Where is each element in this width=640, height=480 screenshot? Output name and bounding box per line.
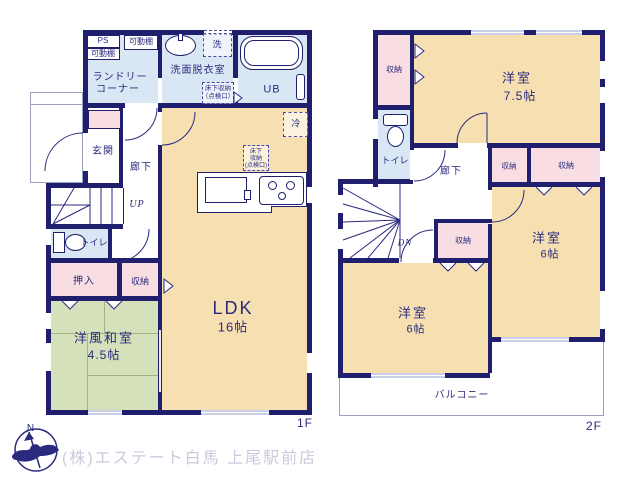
- label-underfloor-wash-1: 床下収納: [205, 86, 231, 93]
- label-hall-1f: 廊下: [130, 163, 152, 173]
- label-storage-2f-a: 収納: [502, 162, 517, 170]
- company-name: (株)エステート白馬 上尾駅前店: [62, 444, 317, 468]
- label-toilet-2f: トイレ: [381, 157, 408, 166]
- label-ps: PS: [98, 37, 109, 45]
- door-arc-laundry: [125, 108, 157, 140]
- label-shelf-b: 可動棚: [129, 38, 153, 46]
- door-arc-toilet-hall-1f: [116, 229, 149, 262]
- label-bed75-name: 洋室: [502, 72, 532, 85]
- compass-north-label: N: [27, 424, 35, 434]
- label-underfloor-wash-2: （点検口）: [202, 94, 235, 101]
- label-underfloor-ldk-1: 床下: [250, 149, 262, 155]
- label-fridge: 冷: [291, 120, 300, 129]
- label-bed6e-size: 6帖: [540, 250, 559, 261]
- label-floor-2f: 2F: [586, 420, 602, 432]
- label-storage-2f-b: 収納: [558, 162, 574, 170]
- label-storage-2f-nw: 収納: [386, 66, 402, 74]
- label-bed75-size: 7.5帖: [504, 90, 537, 102]
- label-closet: 押入: [73, 277, 95, 287]
- label-bed6s-name: 洋室: [398, 307, 428, 320]
- label-balcony: バルコニー: [435, 391, 490, 401]
- label-floor-1f: 1F: [297, 417, 313, 429]
- door-arc-bed75: [457, 113, 487, 143]
- label-storage-2f-c: 収納: [455, 237, 471, 245]
- door-arc-entrance: [45, 133, 83, 171]
- label-tatami-size: 4.5帖: [88, 349, 121, 361]
- label-washer: 洗: [212, 41, 221, 50]
- label-toilet-1f: トイレ: [80, 239, 107, 248]
- label-underfloor-ldk-2: 収納: [250, 156, 262, 162]
- label-tatami-name: 洋風和室: [74, 332, 134, 345]
- door-arc-bed6-east: [492, 190, 524, 222]
- label-laundry-1: ランドリー: [93, 73, 148, 83]
- label-stairs-up: UP: [129, 200, 144, 210]
- label-bed6e-name: 洋室: [532, 232, 562, 245]
- label-bed6s-size: 6帖: [406, 325, 425, 336]
- label-washroom: 洗面脱衣室: [171, 66, 226, 76]
- stairs-1f-treads: [51, 188, 112, 224]
- label-bath: UB: [263, 85, 280, 96]
- label-underfloor-ldk-3: (点検口): [245, 163, 267, 169]
- label-entrance: 玄関: [92, 147, 114, 157]
- label-shelf-a: 可動棚: [91, 50, 115, 58]
- floor-plan-page: PS 可動棚 可動棚 ランドリー コーナー 洗面脱衣室 洗 床下収納 （点検口）…: [0, 0, 640, 480]
- label-ldk-name: LDK: [212, 299, 253, 317]
- label-laundry-2: コーナー: [96, 85, 140, 95]
- label-ldk-size: 16帖: [218, 321, 248, 334]
- compass-icon: [12, 429, 59, 471]
- label-hall-2f: 廊下: [440, 167, 462, 177]
- opening-triangles: [164, 44, 424, 293]
- label-storage-1f: 収納: [131, 278, 149, 287]
- door-arc-ldk: [162, 112, 195, 145]
- stairs-2f-treads: [343, 184, 400, 258]
- label-stairs-dn: DN: [398, 239, 413, 248]
